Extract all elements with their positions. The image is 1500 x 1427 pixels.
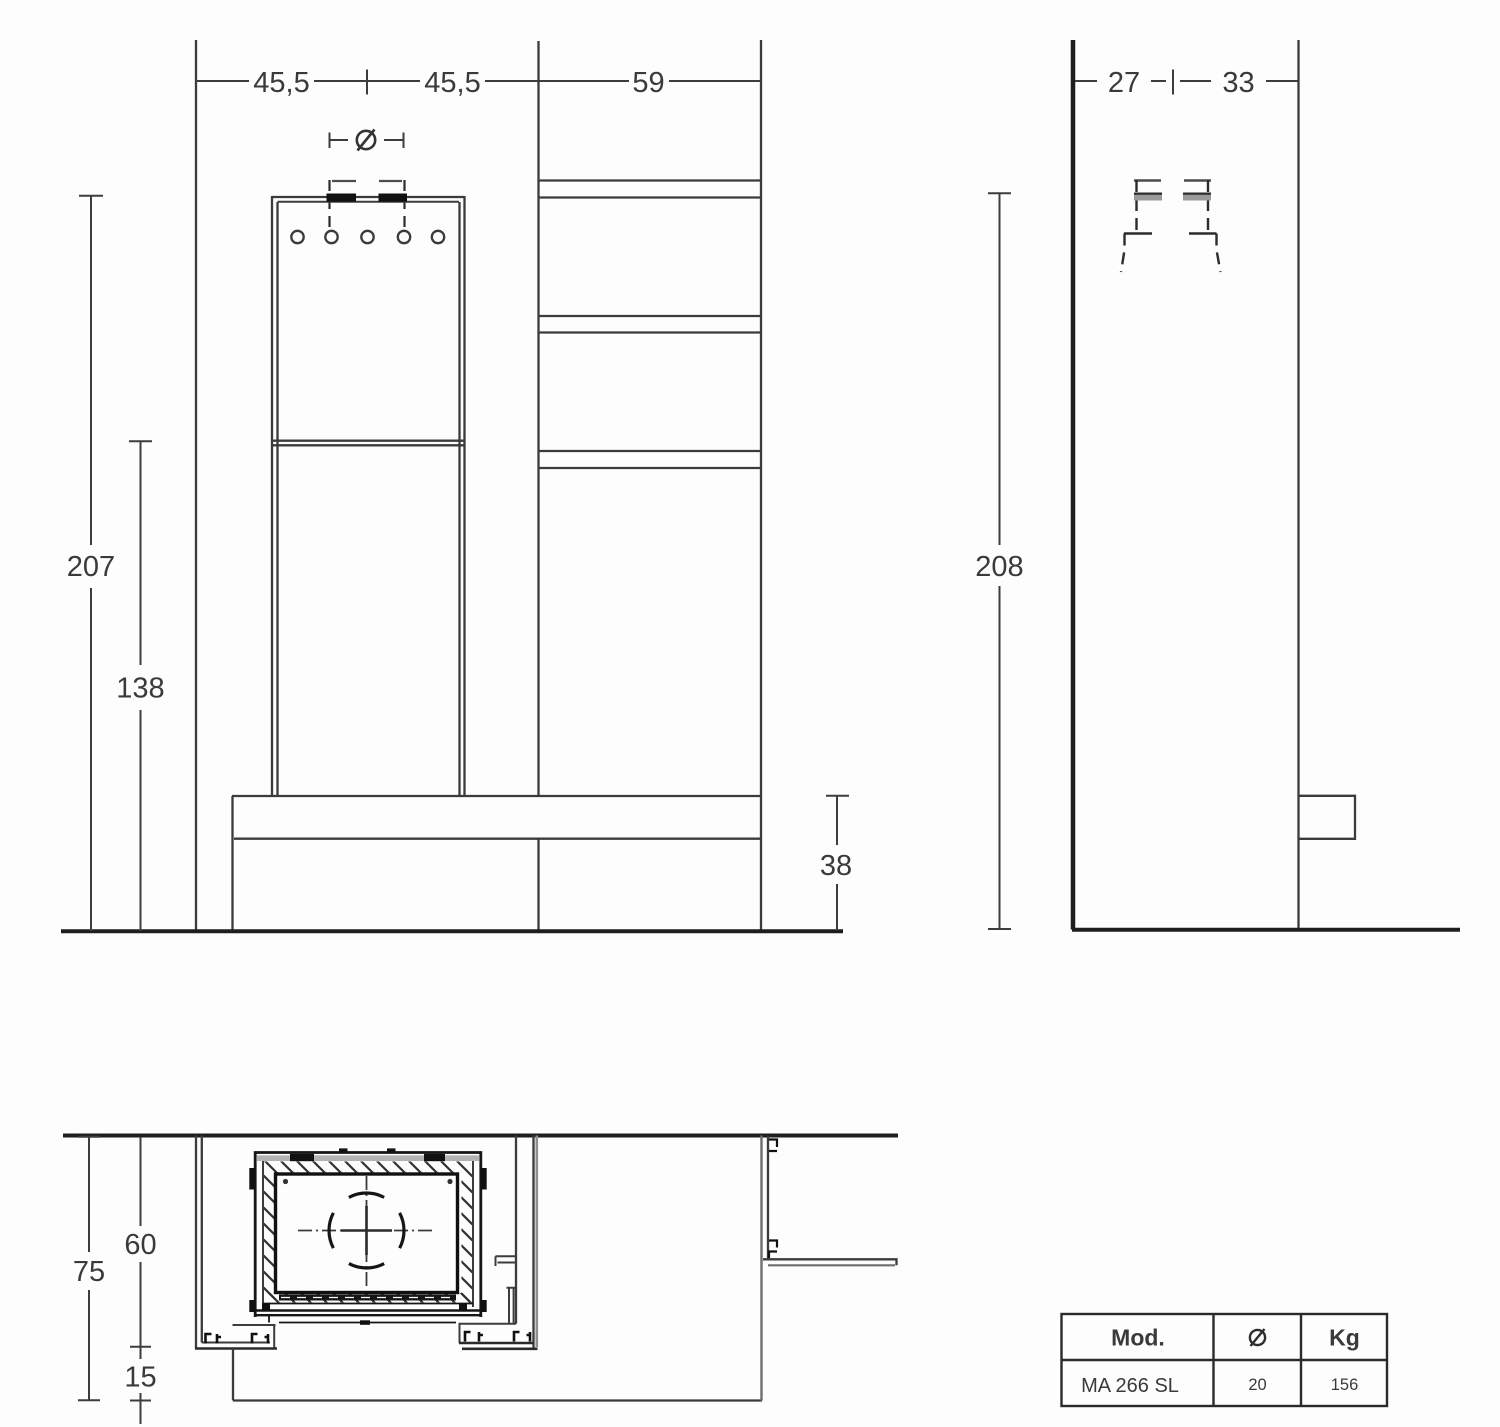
- svg-text:75: 75: [73, 1256, 105, 1288]
- svg-text:33: 33: [1222, 67, 1254, 99]
- svg-text:45,5: 45,5: [424, 67, 480, 99]
- svg-text:45,5: 45,5: [253, 67, 309, 99]
- svg-text:59: 59: [632, 67, 664, 99]
- svg-text:Mod.: Mod.: [1111, 1325, 1165, 1351]
- svg-text:27: 27: [1108, 67, 1140, 99]
- svg-text:20: 20: [1248, 1376, 1266, 1394]
- svg-text:207: 207: [67, 551, 115, 583]
- svg-text:38: 38: [820, 850, 852, 882]
- svg-text:Kg: Kg: [1329, 1325, 1360, 1351]
- svg-text:156: 156: [1331, 1376, 1359, 1394]
- svg-text:MA 266 SL: MA 266 SL: [1081, 1375, 1179, 1397]
- svg-text:138: 138: [116, 673, 164, 705]
- svg-text:208: 208: [975, 551, 1023, 583]
- svg-text:15: 15: [124, 1362, 156, 1394]
- svg-text:60: 60: [124, 1229, 156, 1261]
